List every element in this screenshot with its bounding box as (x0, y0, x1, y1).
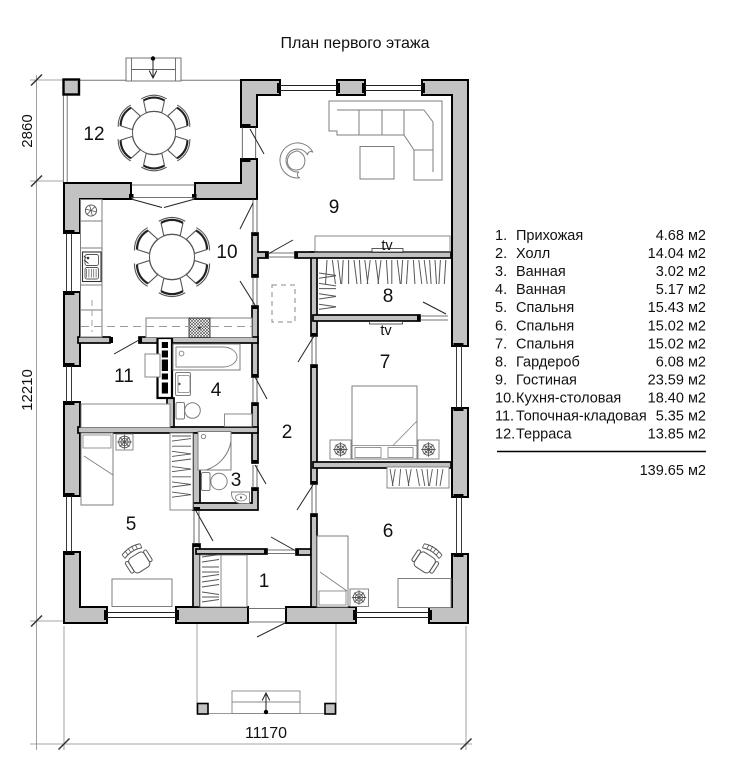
svg-text:15.02 м2: 15.02 м2 (648, 318, 706, 334)
svg-text:3.: 3. (495, 264, 507, 280)
svg-text:15.43 м2: 15.43 м2 (648, 300, 706, 316)
svg-text:1.: 1. (495, 228, 507, 244)
svg-text:11170: 11170 (245, 725, 287, 742)
svg-text:5.: 5. (495, 300, 507, 316)
svg-text:14.04 м2: 14.04 м2 (648, 246, 706, 262)
svg-text:Гардероб: Гардероб (516, 354, 580, 370)
svg-text:6.08 м2: 6.08 м2 (656, 354, 706, 370)
svg-text:6: 6 (383, 521, 394, 542)
svg-text:5.17 м2: 5.17 м2 (656, 282, 706, 298)
svg-text:Ванная: Ванная (516, 264, 566, 280)
svg-text:12: 12 (83, 124, 104, 145)
svg-text:8.: 8. (495, 354, 507, 370)
svg-text:9.: 9. (495, 372, 507, 388)
svg-text:tv: tv (381, 238, 393, 254)
svg-text:Спальня: Спальня (516, 318, 574, 334)
svg-text:4.68 м2: 4.68 м2 (656, 228, 706, 244)
svg-text:2.: 2. (495, 246, 507, 262)
svg-text:Терраса: Терраса (516, 427, 573, 443)
svg-text:6.: 6. (495, 318, 507, 334)
svg-text:5: 5 (126, 514, 137, 535)
svg-text:tv: tv (380, 323, 392, 339)
svg-text:4: 4 (211, 380, 222, 401)
svg-text:23.59 м2: 23.59 м2 (648, 372, 706, 388)
svg-text:5.35 м2: 5.35 м2 (656, 409, 706, 425)
svg-text:11.: 11. (495, 409, 514, 425)
svg-text:4.: 4. (495, 282, 507, 298)
svg-text:Ванная: Ванная (516, 282, 566, 298)
svg-text:2860: 2860 (19, 114, 36, 147)
svg-text:7: 7 (380, 352, 391, 373)
svg-text:План первого этажа: План первого этажа (281, 35, 430, 52)
svg-text:10: 10 (216, 242, 237, 263)
svg-text:Спальня: Спальня (516, 300, 574, 316)
svg-text:139.65 м2: 139.65 м2 (640, 463, 706, 479)
svg-text:2: 2 (282, 422, 293, 443)
svg-text:3.02 м2: 3.02 м2 (656, 264, 706, 280)
svg-text:Прихожая: Прихожая (516, 228, 583, 244)
svg-text:Кухня-столовая: Кухня-столовая (516, 390, 621, 406)
svg-text:10.: 10. (495, 390, 515, 406)
svg-text:7.: 7. (495, 336, 507, 352)
svg-text:13.85 м2: 13.85 м2 (648, 427, 706, 443)
svg-text:8: 8 (383, 286, 394, 307)
svg-text:3: 3 (231, 470, 242, 491)
svg-text:15.02 м2: 15.02 м2 (648, 336, 706, 352)
svg-text:12.: 12. (495, 427, 515, 443)
svg-text:Спальня: Спальня (516, 336, 574, 352)
svg-text:Гостиная: Гостиная (516, 372, 577, 388)
svg-text:Холл: Холл (516, 246, 550, 262)
svg-text:11: 11 (114, 366, 134, 387)
svg-text:18.40 м2: 18.40 м2 (648, 390, 706, 406)
svg-text:Топочная-кладовая: Топочная-кладовая (516, 409, 647, 425)
svg-text:12210: 12210 (19, 369, 36, 411)
svg-text:1: 1 (259, 571, 270, 592)
svg-text:9: 9 (329, 197, 340, 218)
